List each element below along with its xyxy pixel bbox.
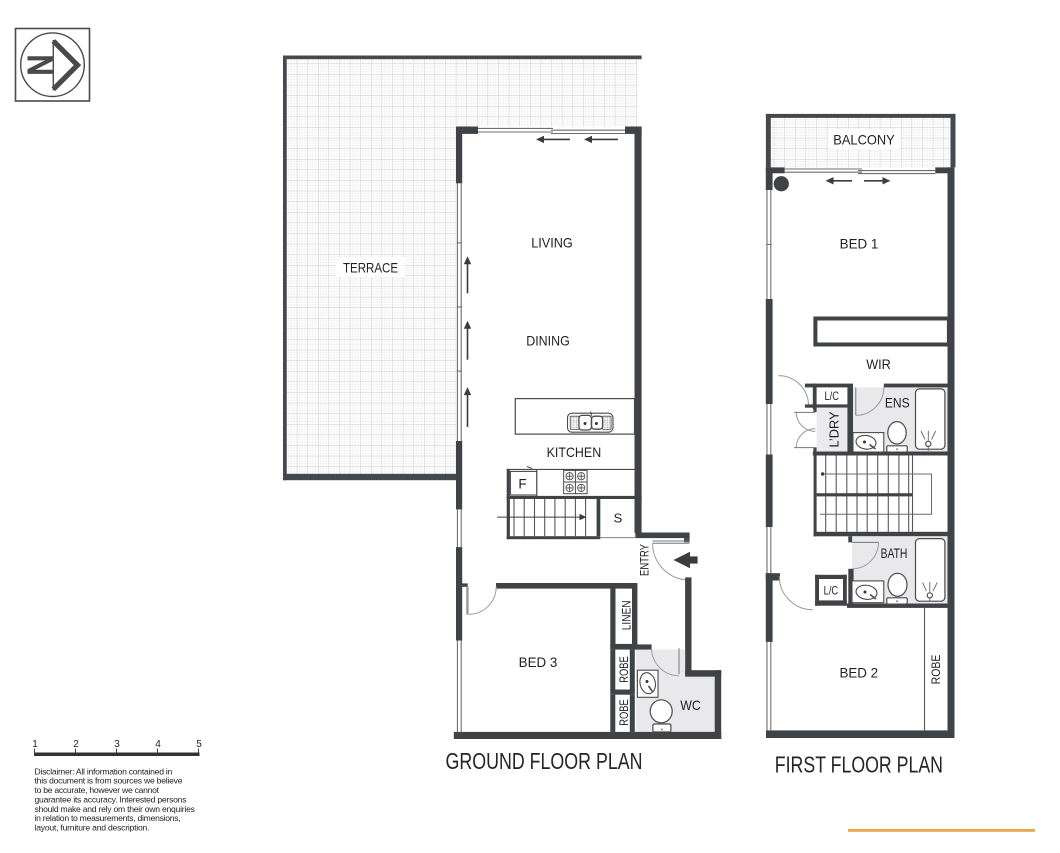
svg-text:ENTRY: ENTRY bbox=[638, 544, 652, 576]
svg-text:L/C: L/C bbox=[824, 583, 839, 597]
svg-text:LIVING: LIVING bbox=[531, 234, 573, 250]
svg-text:ROBE: ROBE bbox=[617, 699, 631, 726]
svg-text:GROUND FLOOR PLAN: GROUND FLOOR PLAN bbox=[446, 748, 643, 774]
svg-text:L’DRY: L’DRY bbox=[827, 411, 842, 447]
svg-text:WC: WC bbox=[680, 697, 701, 713]
svg-text:ENS: ENS bbox=[885, 395, 910, 411]
svg-text:LINEN: LINEN bbox=[620, 600, 634, 630]
svg-text:5: 5 bbox=[196, 739, 202, 750]
svg-text:FIRST FLOOR PLAN: FIRST FLOOR PLAN bbox=[775, 752, 943, 778]
svg-text:ROBE: ROBE bbox=[617, 656, 631, 683]
svg-text:KITCHEN: KITCHEN bbox=[547, 444, 602, 460]
svg-text:DINING: DINING bbox=[526, 332, 570, 348]
svg-text:BED 1: BED 1 bbox=[840, 235, 879, 251]
svg-text:BED 3: BED 3 bbox=[519, 654, 558, 670]
svg-text:WIR: WIR bbox=[866, 356, 891, 372]
svg-text:3: 3 bbox=[114, 739, 120, 750]
svg-text:2: 2 bbox=[73, 739, 79, 750]
svg-text:TERRACE: TERRACE bbox=[343, 259, 398, 275]
svg-text:BATH: BATH bbox=[881, 545, 908, 561]
svg-text:L/C: L/C bbox=[824, 389, 839, 403]
svg-text:ROBE: ROBE bbox=[929, 655, 943, 685]
svg-text:BED 2: BED 2 bbox=[839, 664, 878, 680]
svg-text:layout, furniture and descript: layout, furniture and description. bbox=[35, 822, 150, 832]
svg-text:F: F bbox=[518, 477, 526, 492]
svg-text:BALCONY: BALCONY bbox=[833, 131, 895, 147]
svg-text:1: 1 bbox=[32, 739, 38, 750]
svg-text:S: S bbox=[614, 511, 623, 526]
svg-text:4: 4 bbox=[155, 739, 161, 750]
